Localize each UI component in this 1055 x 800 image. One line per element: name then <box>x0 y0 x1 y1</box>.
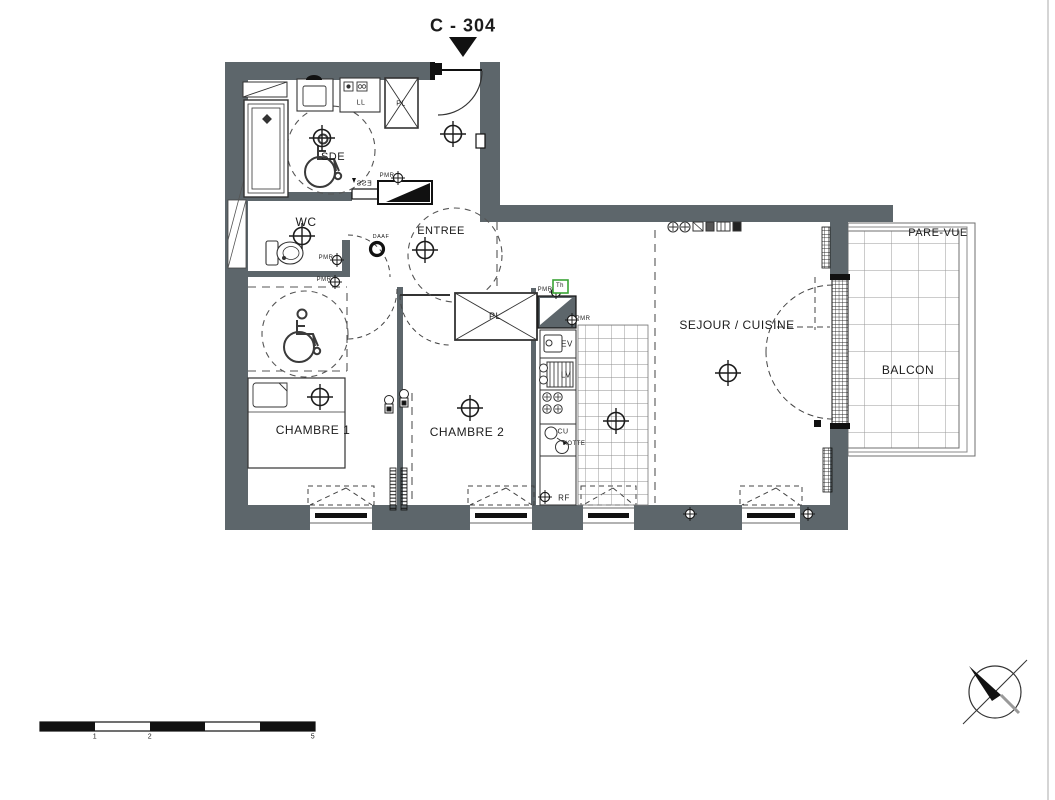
plan-title: C - 304 <box>430 16 496 37</box>
scale-bar <box>40 722 315 731</box>
kitchen <box>538 296 648 505</box>
room-label-wc: WC <box>296 215 317 229</box>
closet-label-pl2: PL <box>489 311 501 321</box>
scale-label-1: 1 <box>93 734 97 741</box>
floor-plan-drawing <box>0 0 1055 800</box>
outlet-symbols <box>385 390 409 414</box>
appliance-label-cu: CU <box>557 429 568 436</box>
annotation-pmr-2: PMR <box>319 255 334 261</box>
annotation-pmr-3: PMR <box>317 277 332 283</box>
appliance-label-rf: RF <box>558 494 570 503</box>
north-arrow-icon <box>963 660 1027 724</box>
balcony <box>848 223 975 456</box>
annotation-pmr-5: PMR <box>576 316 591 322</box>
appliance-label-hotte: HOTTE <box>563 441 586 447</box>
appliance-label-lv: LV <box>561 371 571 380</box>
annotation-daaf: DAAF <box>373 234 390 240</box>
appliance-label-ll: LL <box>357 100 366 107</box>
room-label-sde: SDE <box>321 151 345 163</box>
annotation-th: Th <box>556 283 564 289</box>
entrance-marker-icon <box>449 37 477 57</box>
balcony-door-swing <box>766 277 833 419</box>
wc-fixtures <box>266 241 303 265</box>
annotation-pmr-1: PMR <box>380 173 395 179</box>
floor-plan-page: C - 304 SDE WC ENTREE CHAMBRE 1 CHAMBRE … <box>0 0 1055 800</box>
room-label-chambre2: CHAMBRE 2 <box>430 425 505 439</box>
label-pare-vue: PARE-VUE <box>908 227 967 239</box>
annotation-ess: ESS <box>356 181 372 188</box>
scale-label-2: 2 <box>148 734 152 741</box>
entrance-door <box>430 62 482 115</box>
daaf-detector-icon <box>371 243 384 256</box>
appliance-label-ev: EV <box>561 340 573 349</box>
bathroom-fixtures <box>243 75 380 197</box>
closet-label-pl1: PL <box>396 101 406 108</box>
room-label-sejour: SEJOUR / CUISINE <box>679 318 794 332</box>
room-label-entree: ENTREE <box>417 225 465 237</box>
electrical-cluster <box>668 222 741 232</box>
scale-label-5: 5 <box>311 734 315 741</box>
room-label-chambre1: CHAMBRE 1 <box>276 423 351 437</box>
radiator <box>476 134 485 148</box>
room-label-balcon: BALCON <box>882 363 934 377</box>
annotation-pmr-4: PMR <box>538 287 553 293</box>
ceiling-lights <box>289 121 741 434</box>
